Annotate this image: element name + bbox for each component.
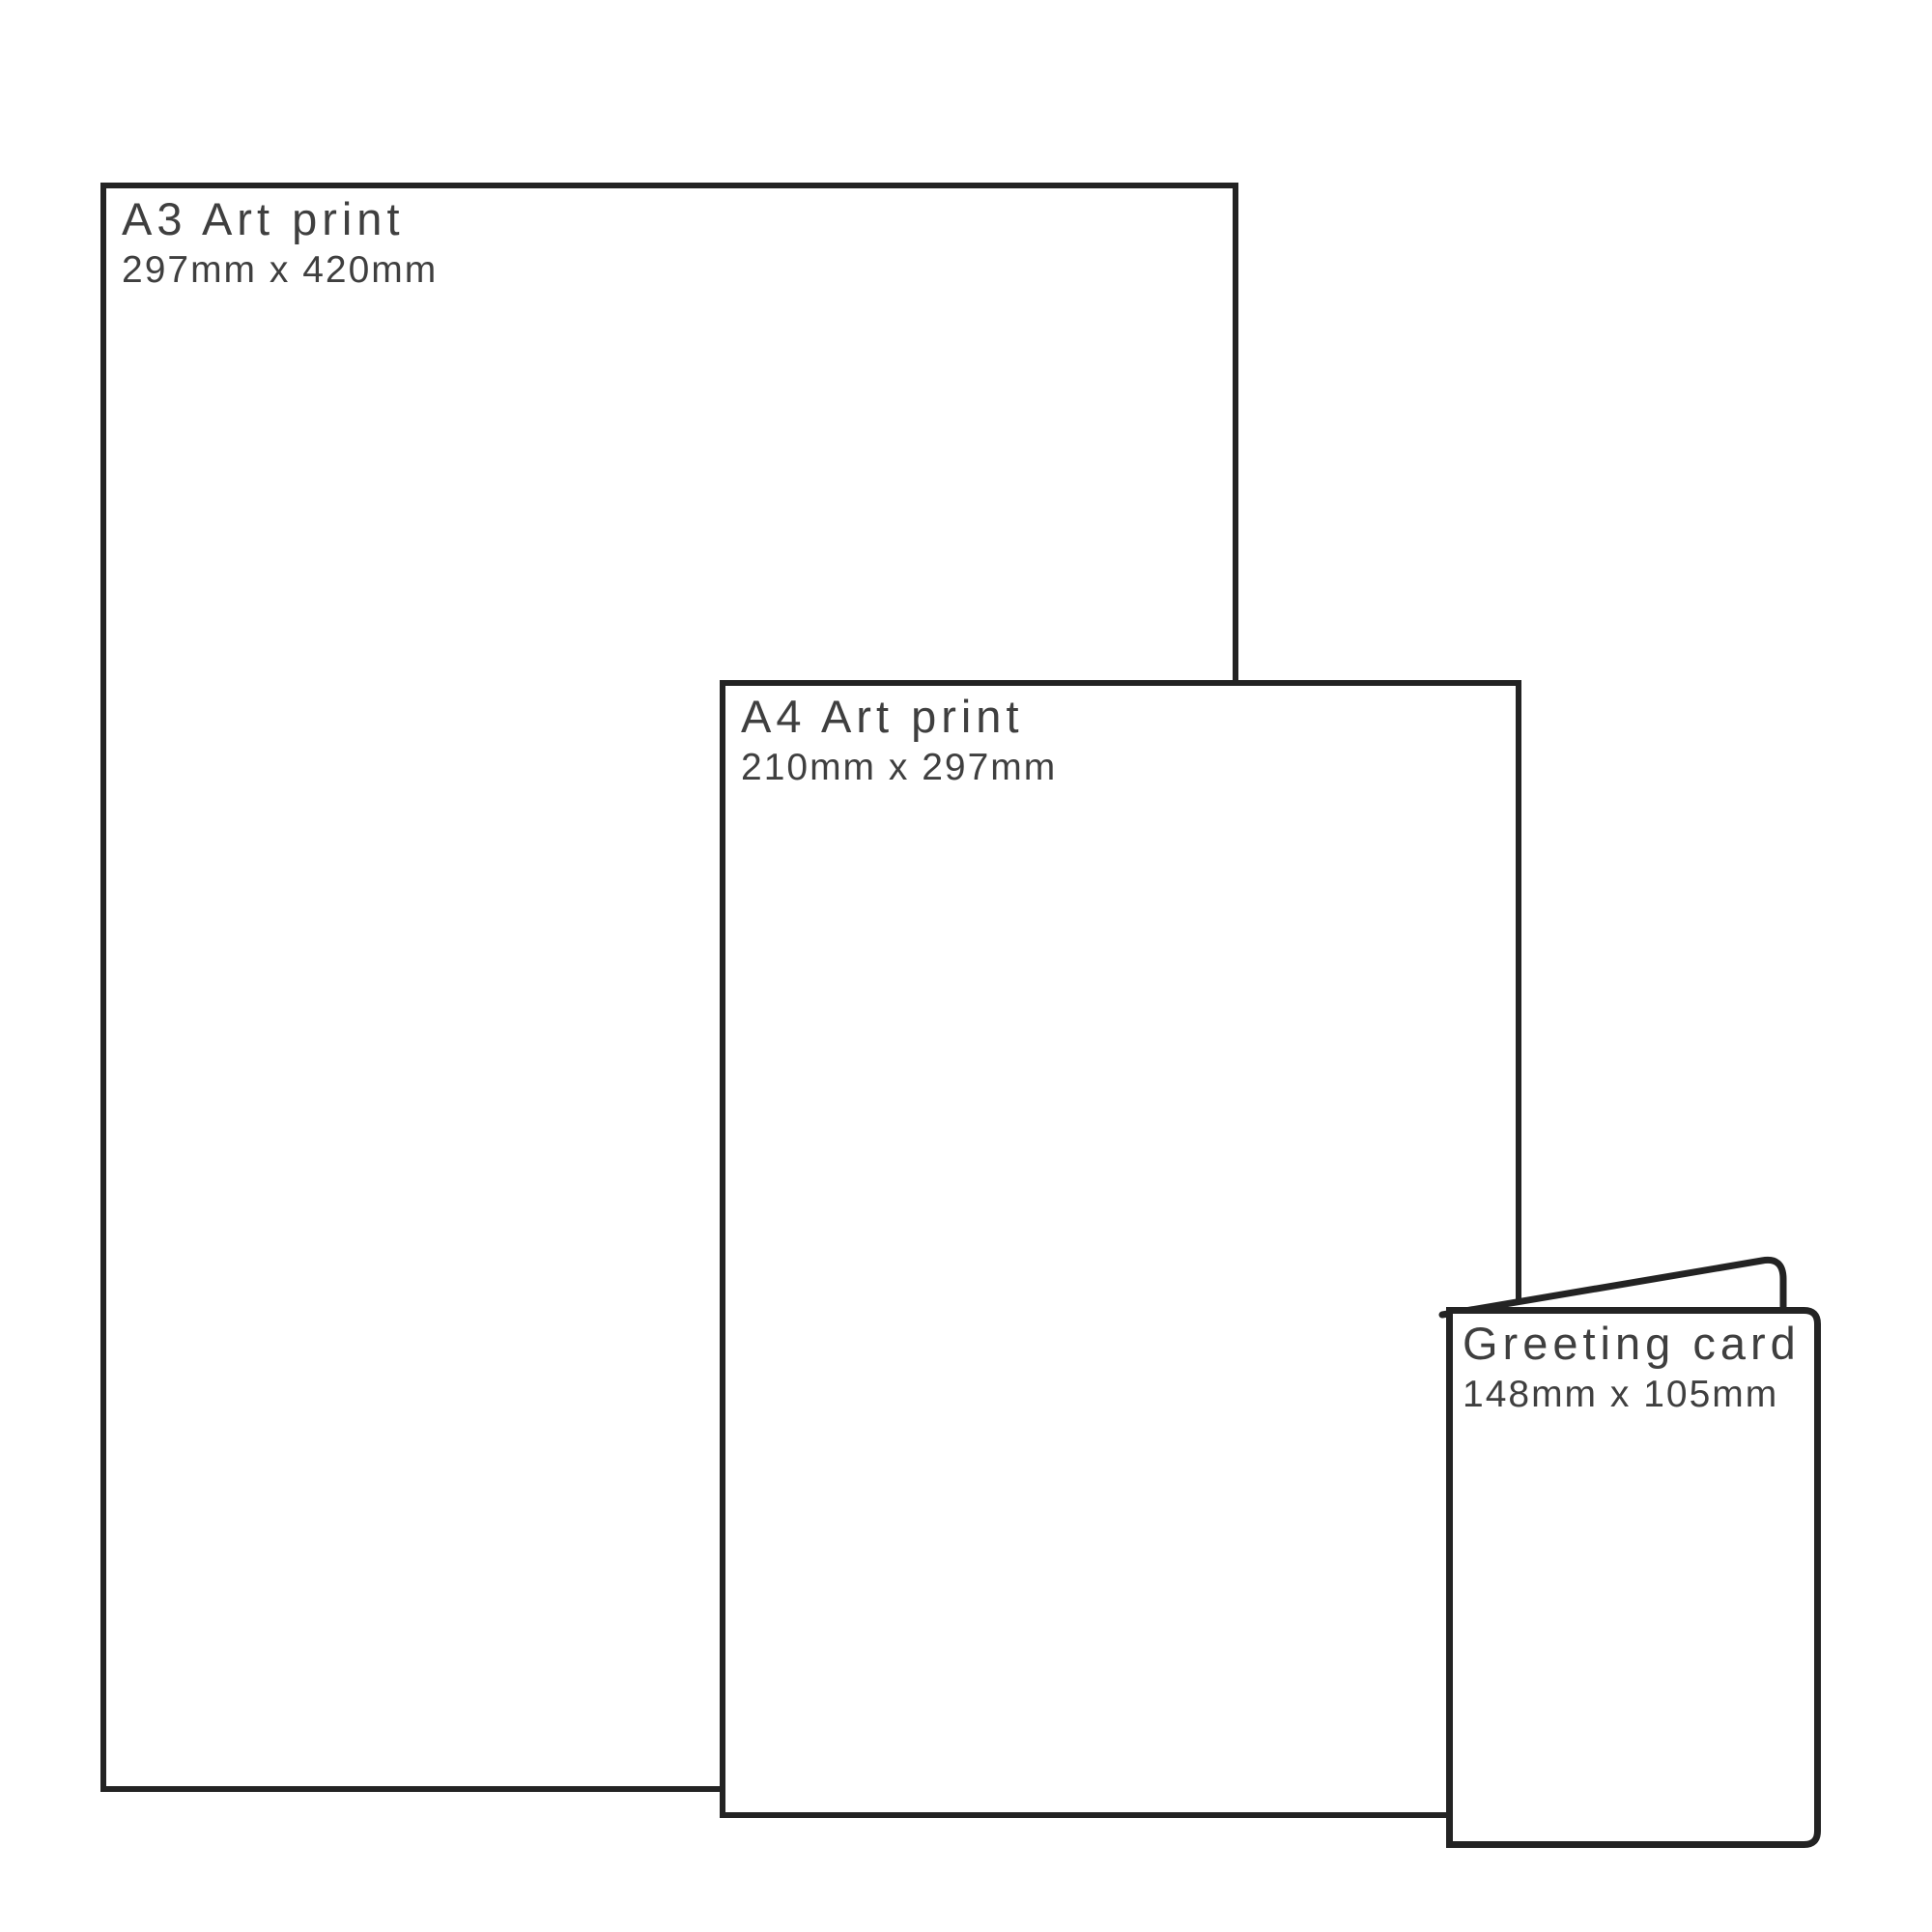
a4-print-dimensions: 210mm x 297mm <box>741 744 1057 792</box>
a3-print-title: A3 Art print <box>122 191 438 246</box>
size-comparison-diagram: A3 Art print 297mm x 420mm A4 Art print … <box>0 0 1932 1932</box>
greeting-card-dimensions: 148mm x 105mm <box>1463 1371 1801 1419</box>
a4-print-title: A4 Art print <box>741 689 1057 744</box>
a3-print-dimensions: 297mm x 420mm <box>122 246 438 295</box>
a4-print-label: A4 Art print 210mm x 297mm <box>741 689 1057 792</box>
a4-print-rect <box>723 683 1519 1815</box>
greeting-card-label: Greeting card 148mm x 105mm <box>1463 1316 1801 1419</box>
greeting-card-title: Greeting card <box>1463 1316 1801 1371</box>
a3-print-label: A3 Art print 297mm x 420mm <box>122 191 438 295</box>
